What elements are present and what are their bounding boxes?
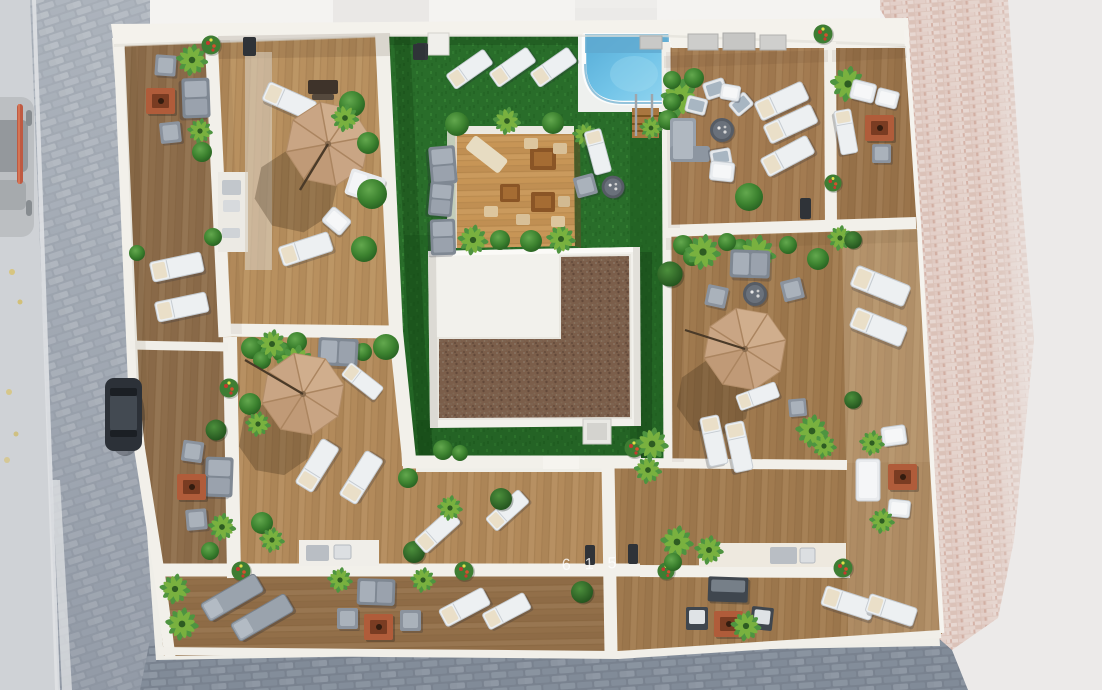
svg-text:615: 615 — [562, 555, 631, 574]
